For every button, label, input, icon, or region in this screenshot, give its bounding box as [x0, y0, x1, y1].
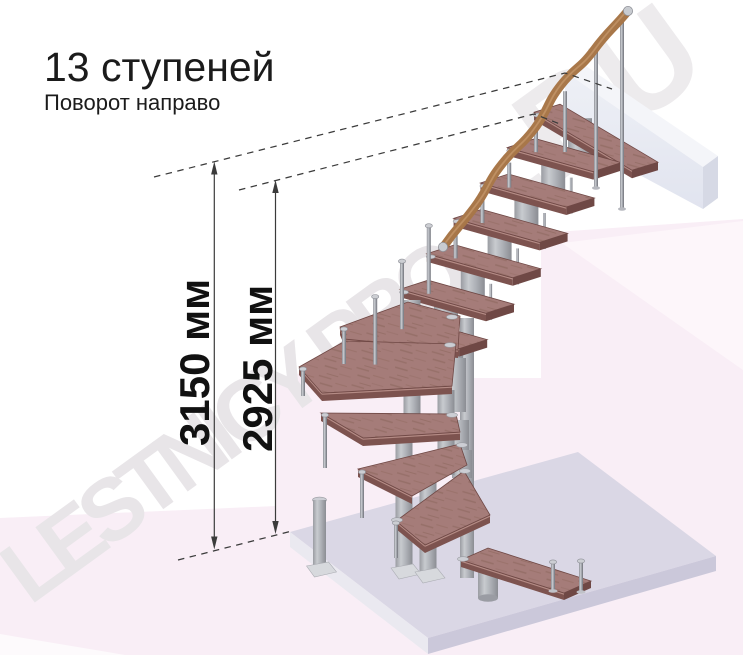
svg-text:Поворот направо: Поворот направо — [44, 90, 220, 115]
svg-text:13 ступеней: 13 ступеней — [44, 44, 275, 90]
svg-text:2925 мм: 2925 мм — [234, 285, 281, 452]
svg-text:3150 мм: 3150 мм — [171, 279, 218, 446]
